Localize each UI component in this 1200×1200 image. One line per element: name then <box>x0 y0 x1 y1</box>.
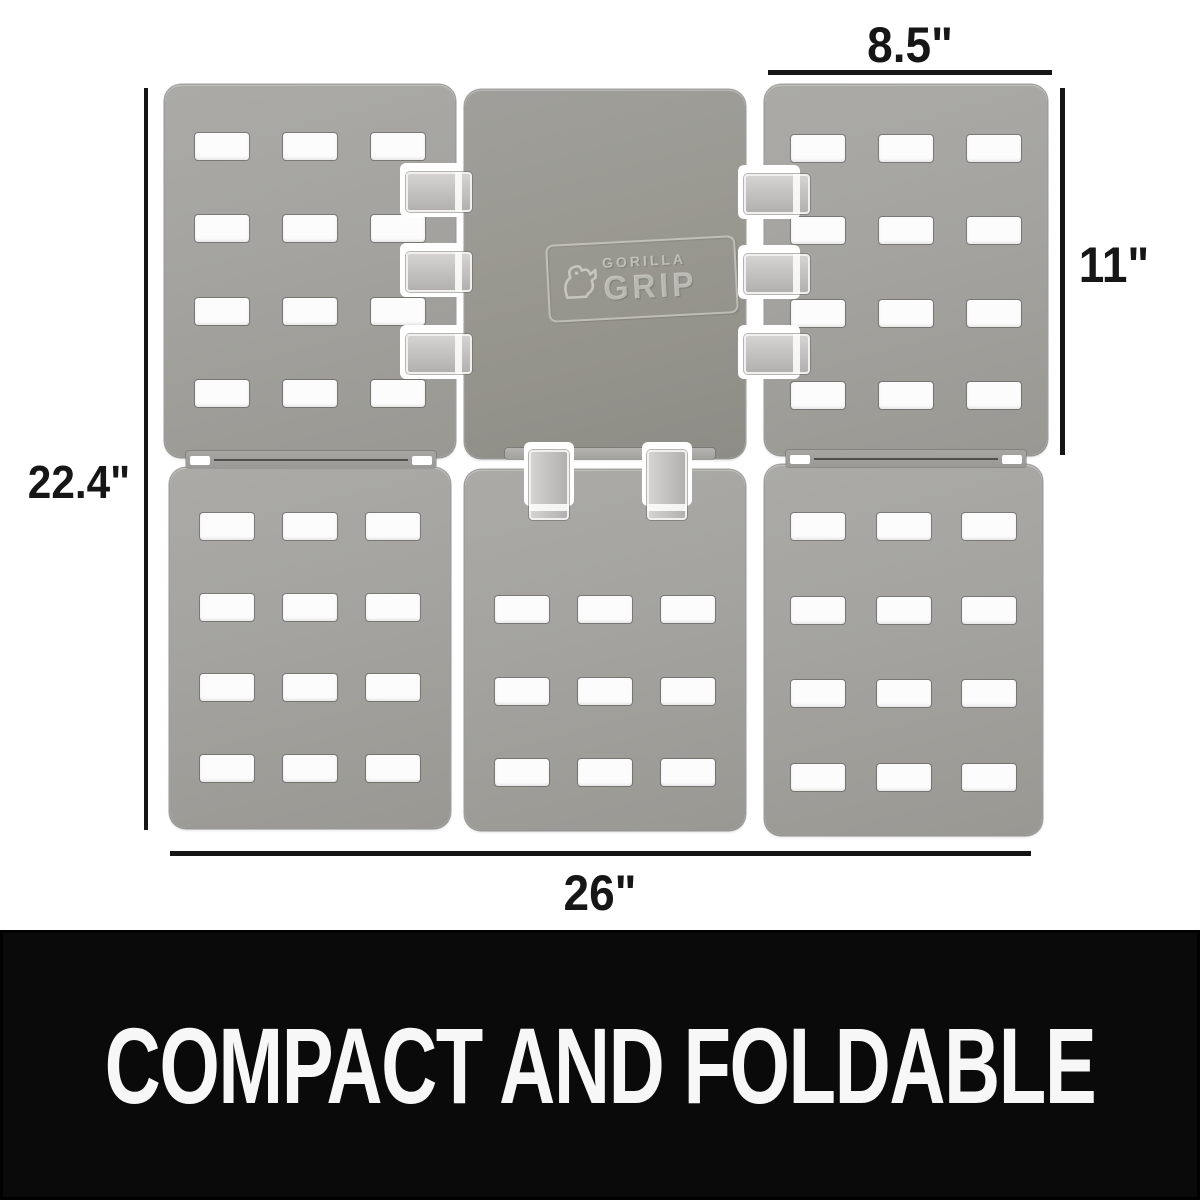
vent-slot <box>879 300 933 327</box>
hinge-clip <box>736 325 814 379</box>
vent-slot <box>962 764 1016 791</box>
vent-slot <box>195 133 249 160</box>
panel-bottom-left <box>170 468 450 828</box>
hinge-seam <box>214 459 408 461</box>
hinge-clip <box>736 245 814 299</box>
dimension-label-panel-width: 8.5" <box>816 16 1004 74</box>
vent-slot <box>200 513 254 540</box>
vent-slot <box>495 596 549 623</box>
vent-slot <box>371 215 425 242</box>
clip-body <box>744 334 810 374</box>
hinge-clip <box>400 163 478 217</box>
logo-line2: GRIP <box>603 267 699 306</box>
vent-slot <box>195 215 249 242</box>
vent-slot <box>967 300 1021 327</box>
vent-slot <box>283 755 337 782</box>
caption-text: COMPACT AND FOLDABLE <box>105 1003 1096 1128</box>
dimension-label-panel-height: 11" <box>1062 236 1165 294</box>
logo-wordmark: GORILLA GRIP <box>602 251 704 306</box>
clip-body <box>406 172 472 212</box>
vent-slot <box>283 594 337 621</box>
vent-slot <box>661 678 715 705</box>
vent-slot <box>967 135 1021 162</box>
hinge-notch <box>1002 455 1022 464</box>
vent-slot <box>578 596 632 623</box>
hinge-notch <box>412 456 432 465</box>
vent-slot <box>967 217 1021 244</box>
vent-slot <box>791 300 845 327</box>
vent-slot-grid <box>465 470 745 830</box>
vent-slot <box>879 135 933 162</box>
vent-slot <box>283 674 337 701</box>
vent-slot <box>371 298 425 325</box>
vent-slot <box>283 215 337 242</box>
vent-slot <box>195 298 249 325</box>
vent-slot <box>366 755 420 782</box>
vent-slot <box>791 764 845 791</box>
vent-slot <box>200 594 254 621</box>
fold-hinge-right <box>786 450 1026 467</box>
dimension-label-unfolded-height: 22.4" <box>23 455 135 509</box>
clip-body <box>406 252 472 292</box>
vent-slot <box>578 678 632 705</box>
vent-slot <box>200 674 254 701</box>
vent-slot <box>877 513 931 540</box>
hinge-seam <box>814 458 998 460</box>
hinge-clip <box>400 243 478 297</box>
vent-slot <box>791 680 845 707</box>
panel-bottom-center <box>465 470 745 830</box>
clip-body <box>529 450 569 520</box>
hinge-notch <box>190 456 210 465</box>
clip-body <box>406 334 472 374</box>
vent-slot <box>877 680 931 707</box>
hinge-clip <box>400 325 478 379</box>
hinge-notch <box>790 455 810 464</box>
vent-slot <box>661 596 715 623</box>
vent-slot <box>791 217 845 244</box>
vent-slot <box>879 382 933 409</box>
vent-slot <box>371 380 425 407</box>
gorilla-icon <box>556 255 601 310</box>
hinge-clip <box>736 165 814 219</box>
vent-slot <box>578 759 632 786</box>
clip-body <box>744 174 810 214</box>
vent-slot-grid <box>765 465 1042 835</box>
vent-slot <box>661 759 715 786</box>
vent-slot <box>962 513 1016 540</box>
hinge-clip-vertical <box>640 442 694 526</box>
vent-slot <box>195 380 249 407</box>
vent-slot <box>962 597 1016 624</box>
vent-slot-grid <box>170 468 450 828</box>
vent-slot <box>791 597 845 624</box>
vent-slot <box>283 298 337 325</box>
vent-slot <box>879 217 933 244</box>
product-diagram: GORILLA GRIP 22.4" 8.5" <box>0 0 1200 930</box>
vent-slot <box>962 680 1016 707</box>
dimension-label-unfolded-width: 26" <box>525 864 676 922</box>
vent-slot <box>283 513 337 540</box>
hinge-clip-vertical <box>522 442 576 526</box>
vent-slot <box>283 380 337 407</box>
vent-slot <box>366 513 420 540</box>
gorilla-grip-logo: GORILLA GRIP <box>545 235 739 323</box>
vent-slot <box>200 755 254 782</box>
vent-slot <box>791 135 845 162</box>
clip-body <box>744 254 810 294</box>
clip-body <box>647 450 687 520</box>
panel-top-center: GORILLA GRIP <box>465 90 745 458</box>
fold-hinge-left <box>186 451 436 468</box>
vent-slot <box>877 597 931 624</box>
vent-slot <box>283 133 337 160</box>
dimension-line-unfolded-width <box>170 851 1031 856</box>
panel-bottom-right <box>765 465 1042 835</box>
vent-slot <box>495 678 549 705</box>
vent-slot <box>371 133 425 160</box>
vent-slot <box>495 759 549 786</box>
vent-slot <box>791 513 845 540</box>
vent-slot <box>366 594 420 621</box>
vent-slot <box>967 382 1021 409</box>
vent-slot <box>791 382 845 409</box>
vent-slot <box>877 764 931 791</box>
caption-banner: COMPACT AND FOLDABLE <box>0 930 1200 1200</box>
dimension-line-unfolded-height <box>144 88 148 830</box>
vent-slot <box>366 674 420 701</box>
